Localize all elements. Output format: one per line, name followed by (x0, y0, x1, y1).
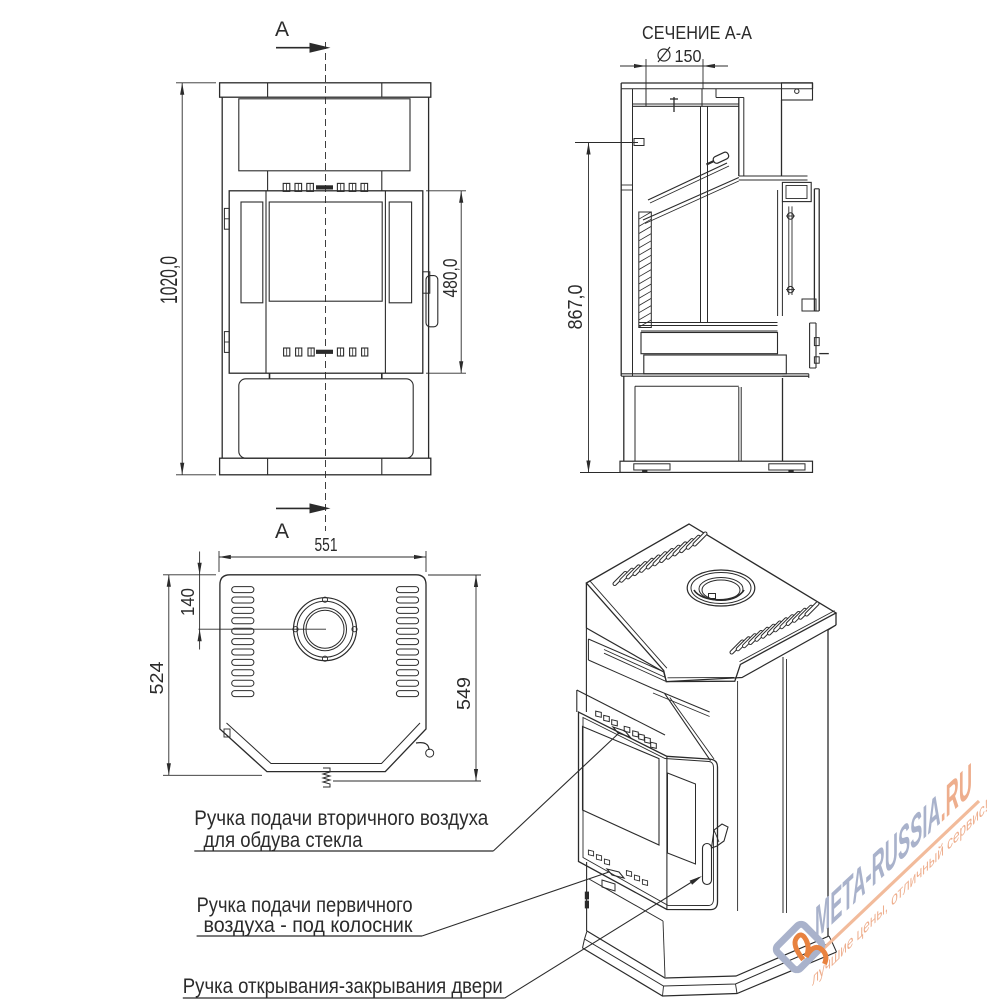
svg-text:140: 140 (178, 588, 198, 616)
svg-text:480,0: 480,0 (440, 259, 462, 298)
svg-text:для обдува стекла: для обдува стекла (204, 829, 363, 852)
svg-text:551: 551 (315, 535, 338, 555)
svg-text:150: 150 (675, 46, 702, 66)
svg-text:A: A (275, 520, 289, 543)
svg-text:воздуха - под колосник: воздуха - под колосник (204, 914, 414, 937)
svg-text:Ручка открывания-закрывания дв: Ручка открывания-закрывания двери (183, 975, 503, 998)
svg-text:524: 524 (147, 662, 167, 695)
svg-text:867,0: 867,0 (565, 285, 587, 330)
svg-text:A: A (275, 18, 289, 41)
svg-text:1020,0: 1020,0 (156, 256, 183, 304)
svg-text:СЕЧЕНИЕ А-А: СЕЧЕНИЕ А-А (642, 22, 753, 43)
svg-text:Ручка подачи вторичного воздух: Ручка подачи вторичного воздуха (194, 807, 488, 830)
svg-text:549: 549 (454, 677, 474, 710)
